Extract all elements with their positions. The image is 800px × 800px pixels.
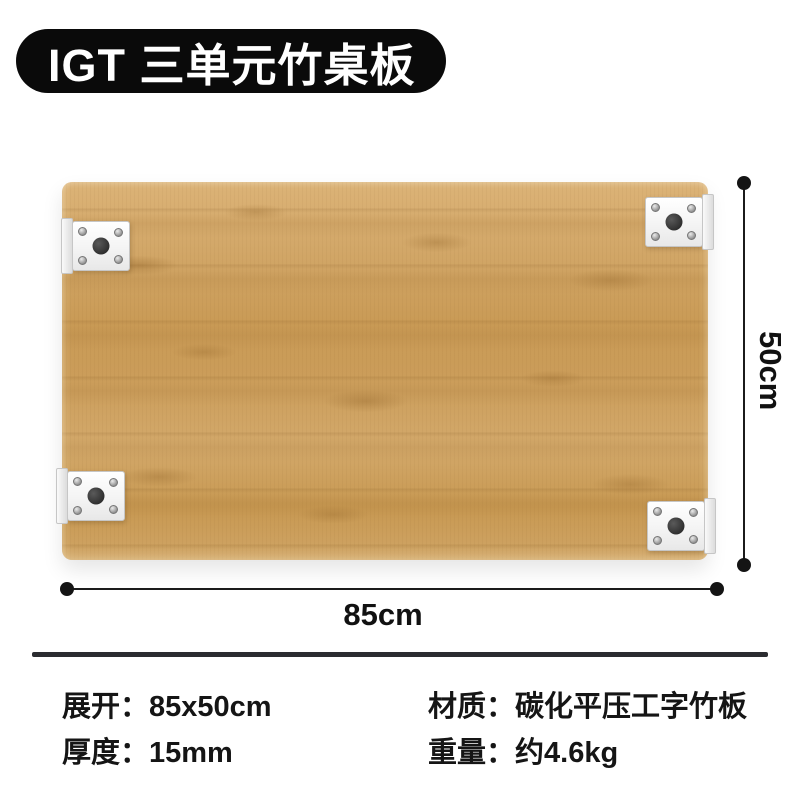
height-dimension-label: 50cm bbox=[752, 331, 788, 410]
spec-value: 85x50cm bbox=[149, 691, 272, 723]
mounting-hole bbox=[668, 518, 685, 535]
screw-icon bbox=[109, 478, 118, 487]
screw-icon bbox=[114, 228, 123, 237]
screw-icon bbox=[687, 231, 696, 240]
screw-icon bbox=[73, 506, 82, 515]
screw-icon bbox=[689, 535, 698, 544]
height-dimension-line bbox=[743, 183, 745, 565]
dimension-endpoint-dot bbox=[710, 582, 724, 596]
screw-icon bbox=[689, 508, 698, 517]
dimension-endpoint-dot bbox=[737, 558, 751, 572]
screw-icon bbox=[109, 505, 118, 514]
spec-label: 厚度： bbox=[62, 737, 149, 769]
screw-icon bbox=[651, 203, 660, 212]
corner-bracket-top-left bbox=[72, 221, 130, 271]
product-title-badge: IGT 三单元竹桌板 bbox=[16, 29, 446, 93]
screw-icon bbox=[73, 477, 82, 486]
screw-icon bbox=[78, 256, 87, 265]
mounting-hole bbox=[93, 238, 110, 255]
spec-thickness: 厚度：15mm bbox=[62, 729, 233, 771]
product-title: IGT 三单元竹桌板 bbox=[48, 29, 416, 94]
dimension-endpoint-dot bbox=[737, 176, 751, 190]
width-dimension-line bbox=[67, 588, 717, 590]
screw-icon bbox=[687, 204, 696, 213]
spec-value: 碳化平压工字竹板 bbox=[515, 691, 747, 723]
spec-label: 重量： bbox=[428, 737, 515, 769]
screw-icon bbox=[653, 536, 662, 545]
spec-value: 约4.6kg bbox=[515, 737, 618, 769]
spec-material: 材质：碳化平压工字竹板 bbox=[428, 683, 747, 725]
product-card: IGT 三单元竹桌板 bbox=[0, 0, 800, 800]
screw-icon bbox=[78, 227, 87, 236]
screw-icon bbox=[651, 232, 660, 241]
mounting-hole bbox=[88, 488, 105, 505]
corner-bracket-top-right bbox=[645, 197, 703, 247]
width-dimension-label: 85cm bbox=[320, 597, 446, 633]
corner-bracket-bottom-right bbox=[647, 501, 705, 551]
bamboo-board-image bbox=[62, 182, 708, 560]
spec-label: 展开： bbox=[62, 691, 149, 723]
dimension-endpoint-dot bbox=[60, 582, 74, 596]
mounting-hole bbox=[666, 214, 683, 231]
spec-unfolded-size: 展开：85x50cm bbox=[62, 683, 272, 725]
screw-icon bbox=[653, 507, 662, 516]
spec-value: 15mm bbox=[149, 737, 233, 769]
spec-weight: 重量：约4.6kg bbox=[428, 729, 618, 771]
screw-icon bbox=[114, 255, 123, 264]
corner-bracket-bottom-left bbox=[67, 471, 125, 521]
spec-label: 材质： bbox=[428, 691, 515, 723]
section-divider bbox=[32, 652, 768, 657]
